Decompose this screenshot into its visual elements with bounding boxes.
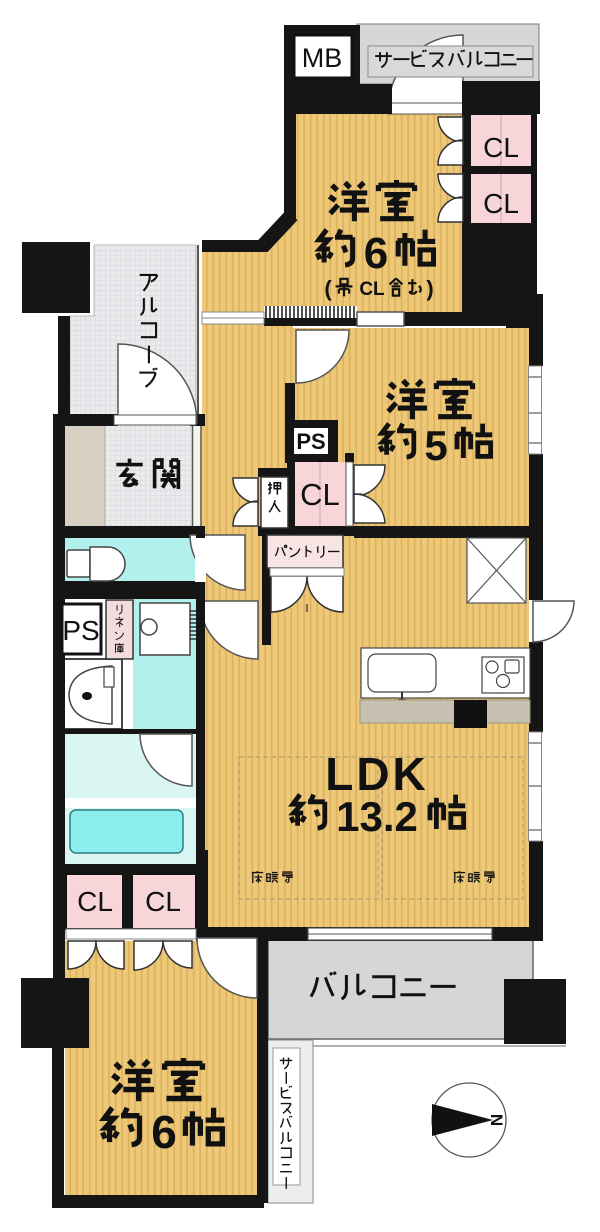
svg-text:PS: PS bbox=[62, 615, 99, 646]
svg-text:PS: PS bbox=[459, 707, 480, 724]
svg-text:CL: CL bbox=[77, 886, 113, 917]
svg-text:(: ( bbox=[324, 276, 332, 301]
svg-text:13.2: 13.2 bbox=[336, 793, 418, 840]
svg-text:N: N bbox=[487, 1114, 506, 1126]
svg-text:6: 6 bbox=[151, 1106, 177, 1158]
svg-text:CL: CL bbox=[483, 132, 519, 163]
svg-text:6: 6 bbox=[364, 229, 388, 278]
svg-text:CL: CL bbox=[483, 188, 519, 219]
svg-text:CL: CL bbox=[145, 886, 181, 917]
svg-text:): ) bbox=[426, 276, 433, 301]
svg-text:PS: PS bbox=[296, 429, 325, 454]
svg-text:5: 5 bbox=[424, 422, 447, 469]
svg-text:CL: CL bbox=[300, 477, 340, 512]
svg-text:CL: CL bbox=[359, 279, 385, 300]
svg-text:MB: MB bbox=[302, 43, 343, 73]
